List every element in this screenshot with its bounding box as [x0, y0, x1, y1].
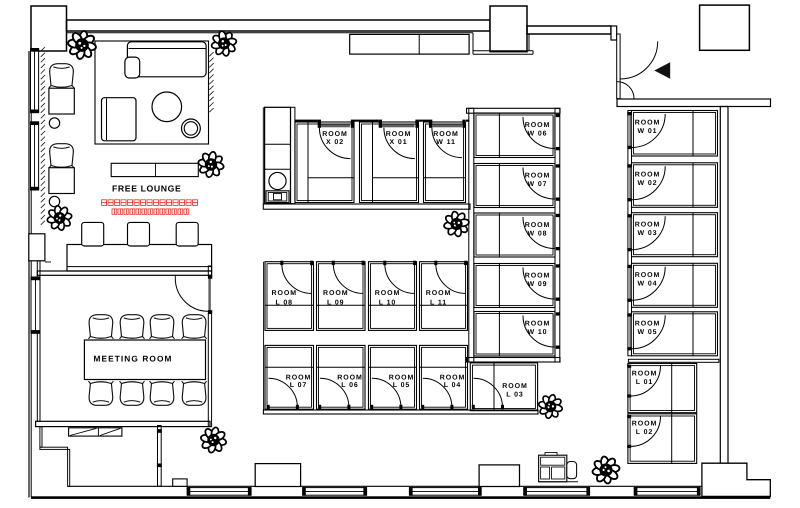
svg-text:ROOM: ROOM — [426, 290, 451, 297]
svg-text:W 02: W 02 — [638, 180, 658, 187]
svg-text:ROOM: ROOM — [635, 172, 660, 179]
svg-text:ROOM: ROOM — [635, 119, 660, 126]
svg-text:X 02: X 02 — [326, 139, 344, 146]
svg-text:ROOM: ROOM — [286, 375, 311, 382]
svg-text:W 01: W 01 — [638, 128, 658, 135]
svg-text:W 06: W 06 — [528, 130, 548, 137]
svg-text:L 08: L 08 — [276, 299, 293, 306]
svg-text:L 05: L 05 — [393, 382, 410, 389]
svg-text:L 11: L 11 — [430, 299, 447, 306]
svg-text:ROOM: ROOM — [635, 222, 660, 229]
svg-text:ROOM: ROOM — [632, 421, 657, 428]
svg-text:ROOM: ROOM — [635, 321, 660, 328]
svg-text:L 03: L 03 — [506, 391, 523, 398]
svg-text:ROOM: ROOM — [272, 290, 297, 297]
svg-text:ROOM: ROOM — [389, 375, 414, 382]
svg-text:ROOM: ROOM — [632, 370, 657, 377]
svg-text:W 09: W 09 — [528, 281, 548, 288]
svg-text:ROOM: ROOM — [525, 273, 550, 280]
svg-text:ROOM: ROOM — [525, 173, 550, 180]
svg-text:ROOM: ROOM — [433, 131, 458, 138]
svg-text:L 06: L 06 — [341, 382, 358, 389]
svg-text:ROOM: ROOM — [440, 375, 465, 382]
svg-text:ROOM: ROOM — [502, 383, 527, 390]
svg-text:ROOM: ROOM — [635, 272, 660, 279]
svg-text:L 10: L 10 — [379, 299, 396, 306]
svg-text:MEETING ROOM: MEETING ROOM — [93, 354, 172, 364]
svg-text:ROOM: ROOM — [337, 375, 362, 382]
svg-text:W 11: W 11 — [436, 139, 456, 146]
svg-text:ROOM: ROOM — [525, 222, 550, 229]
svg-text:W 03: W 03 — [638, 230, 658, 237]
svg-text:W 05: W 05 — [638, 329, 658, 336]
svg-text:W 10: W 10 — [528, 329, 548, 336]
svg-text:ROOM: ROOM — [322, 131, 347, 138]
svg-text:W 07: W 07 — [528, 181, 548, 188]
svg-text:ROOM: ROOM — [525, 122, 550, 129]
svg-text:W 04: W 04 — [638, 281, 658, 288]
svg-text:ROOM: ROOM — [386, 131, 411, 138]
svg-text:ROOM: ROOM — [525, 321, 550, 328]
svg-text:L 07: L 07 — [290, 382, 307, 389]
svg-text:ROOM: ROOM — [323, 290, 348, 297]
svg-text:X 01: X 01 — [390, 139, 408, 146]
svg-text:W 08: W 08 — [528, 230, 548, 237]
svg-text:FREE LOUNGE: FREE LOUNGE — [112, 184, 181, 194]
svg-text:ROOM: ROOM — [375, 290, 400, 297]
svg-text:L 02: L 02 — [636, 429, 653, 436]
svg-text:L 04: L 04 — [444, 382, 461, 389]
svg-text:L 01: L 01 — [636, 379, 653, 386]
svg-text:L 09: L 09 — [327, 299, 344, 306]
